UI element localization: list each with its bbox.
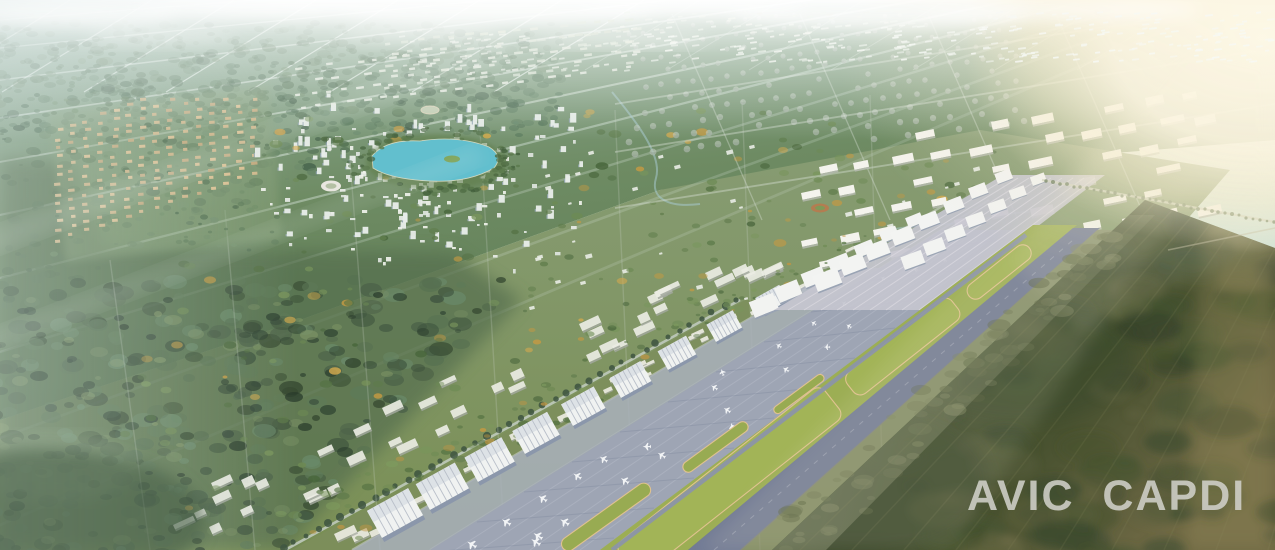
svg-text:AVIC CAPDI: AVIC CAPDI xyxy=(967,472,1246,520)
